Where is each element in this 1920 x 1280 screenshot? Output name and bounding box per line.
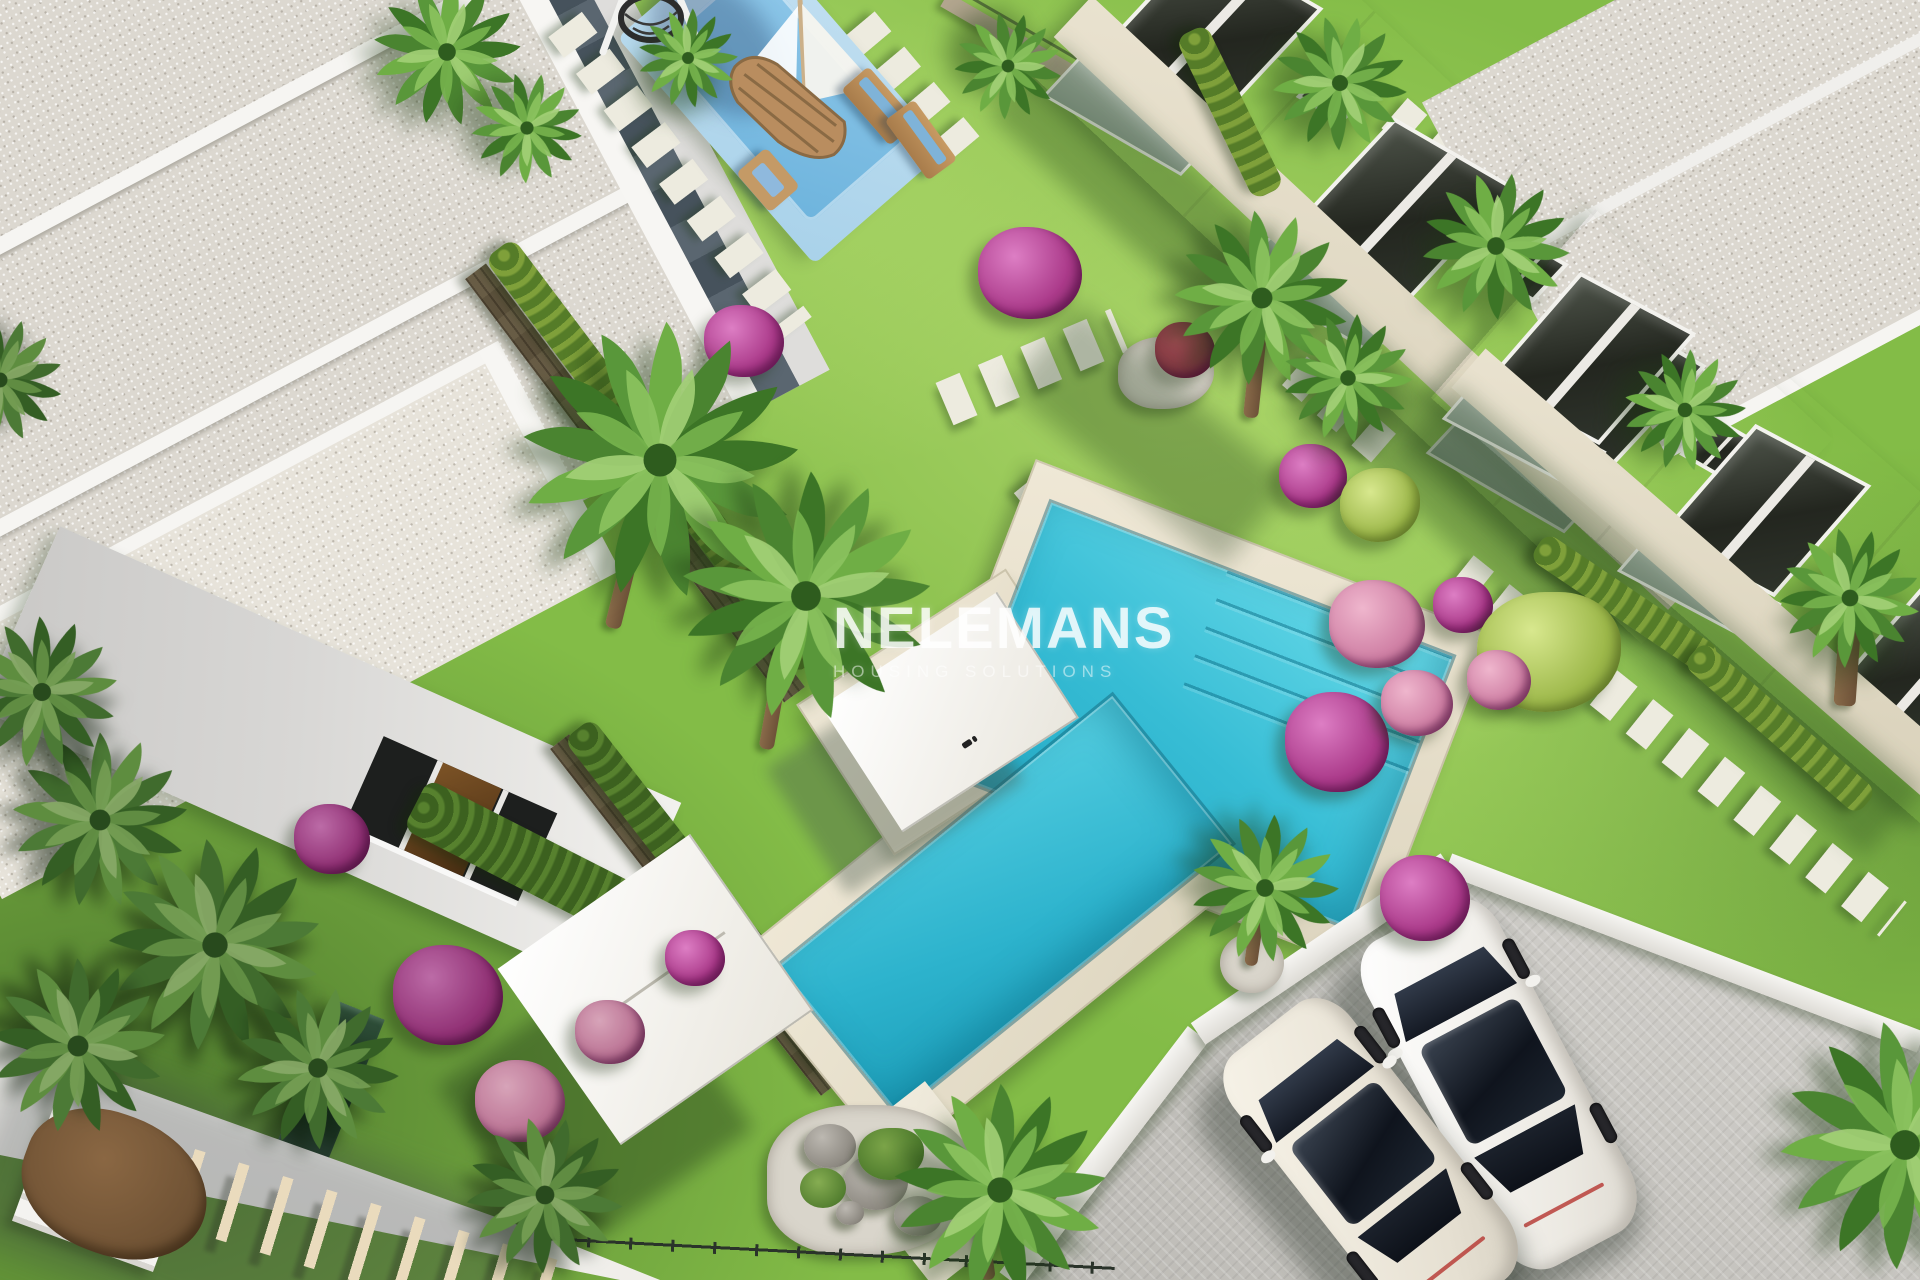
parking-kerb	[1444, 853, 1920, 1052]
roof-edge-fascia	[479, 341, 620, 581]
palm-tree	[0, 580, 154, 804]
playground-safety-mat	[618, 0, 947, 264]
bougainvillea	[978, 227, 1082, 319]
hedge-row	[403, 779, 767, 1001]
boulder	[836, 1201, 864, 1225]
rose-bush	[1467, 650, 1531, 710]
white-walkway	[0, 940, 660, 1280]
palm-tree	[367, 0, 527, 132]
aerial-render-residential-complex: NELEMANS HOUSING SOLUTIONS	[0, 0, 1920, 1280]
car-shadow	[1311, 895, 1659, 1280]
pool-deck	[907, 459, 1493, 971]
pergola-canopy	[498, 834, 814, 1145]
bougainvillea	[704, 305, 784, 377]
palm-tree	[1249, 279, 1446, 476]
roof-parapet	[0, 341, 505, 682]
flowering-bush	[1477, 592, 1621, 712]
rock-garden-grasses	[858, 1128, 924, 1180]
townhouse-row-facade	[1027, 0, 1832, 644]
palm-tree	[442, 43, 611, 212]
cypress-hedge	[1683, 640, 1878, 815]
garden-fence	[545, 1233, 1115, 1275]
palm-tree	[843, 1033, 1157, 1280]
car-body	[1207, 983, 1536, 1280]
bougainvillea	[1279, 444, 1347, 508]
pergola-shadow	[766, 655, 1024, 895]
pool-deck	[729, 647, 1281, 1164]
townhouse-walkway	[1054, 0, 1707, 610]
parking-kerb	[1191, 853, 1455, 1044]
car-shadow	[1178, 992, 1546, 1280]
window-frame	[398, 760, 443, 850]
window-frame	[464, 789, 509, 879]
cypress-hedge	[1529, 532, 1721, 676]
play-table	[736, 147, 800, 212]
building-ledge	[396, 0, 830, 386]
left-building-upper-roof	[0, 0, 830, 910]
pergola-deck	[796, 568, 1104, 855]
palm-trunk	[759, 640, 793, 751]
rose-bush	[575, 1000, 645, 1064]
rose-bush	[475, 1060, 565, 1142]
townhouse-shadow	[1397, 383, 1920, 858]
palm-trunk	[1243, 321, 1268, 418]
boundary-fence	[942, 0, 1167, 111]
pergola-canopy	[821, 592, 1079, 832]
dark-window-band	[344, 736, 557, 901]
slat-fence-shadow	[28, 1122, 548, 1280]
townhouse-walkway	[1451, 348, 1920, 807]
garden-steps	[12, 1108, 194, 1272]
palm-tree	[1395, 145, 1597, 347]
red-shrub	[1155, 322, 1215, 378]
palm-trunk	[605, 500, 652, 630]
pool-steps	[1178, 570, 1453, 786]
sun-lounger-pad	[830, 1081, 1029, 1280]
bougainvillea	[294, 804, 370, 874]
bougainvillea	[1433, 577, 1493, 633]
palm-tree	[1140, 176, 1384, 420]
stepping-stone-path	[936, 309, 1129, 426]
wooden-lounger	[885, 99, 958, 180]
mulch-bed	[2, 1087, 228, 1280]
cypress-hedge	[1175, 24, 1284, 201]
townhouse-roof	[1422, 0, 1920, 394]
roof-parapet	[0, 142, 716, 696]
palm-tree	[1743, 491, 1920, 705]
palm-tree	[55, 785, 375, 1105]
townhouse-row-facade	[1431, 209, 1920, 831]
bougainvillea	[393, 945, 503, 1045]
car-body	[1346, 886, 1653, 1280]
palm-tree	[1740, 980, 1920, 1280]
palm-trunk	[974, 1224, 996, 1280]
palm-trunk	[1244, 907, 1265, 966]
swimming-pool-lap-section	[778, 696, 1232, 1114]
palm-tree	[441, 1091, 649, 1280]
pebble-circle	[1220, 933, 1284, 993]
bougainvillea	[665, 930, 725, 986]
watermark-tagline: HOUSING SOLUTIONS	[833, 662, 1174, 682]
swimming-pool-wide-section	[947, 503, 1452, 928]
palm-tree	[1595, 320, 1775, 500]
palm-tree	[0, 284, 96, 476]
parked-car	[1346, 886, 1653, 1280]
parking-kerb	[1000, 1026, 1209, 1280]
boulder	[844, 1154, 908, 1210]
palm-tree	[616, 0, 760, 130]
boulder	[804, 1124, 856, 1168]
flowering-bush	[1340, 468, 1420, 542]
boundary-wall	[940, 0, 1171, 135]
bougainvillea	[1285, 692, 1389, 792]
window-pane-reflection	[404, 762, 502, 876]
stone-wall	[465, 264, 805, 703]
palm-tree	[618, 408, 994, 784]
palm-tree	[1156, 779, 1375, 998]
stepping-stone-path	[548, 12, 811, 342]
parked-car	[1207, 983, 1536, 1280]
basket-swing	[585, 0, 715, 60]
rose-bush	[1329, 580, 1425, 668]
balcony-glass-band	[360, 0, 799, 404]
stone-wall	[550, 734, 840, 1096]
pergola-shadow	[438, 952, 754, 1263]
rock-garden-bed	[767, 1105, 977, 1255]
rock-garden-grasses	[800, 1168, 846, 1208]
townhouse-roof	[1556, 31, 1920, 459]
stepping-stone-path	[1381, 98, 1552, 254]
stepping-stone-path	[846, 11, 980, 160]
palm-tree	[1253, 0, 1426, 170]
stepping-stone-path	[1446, 555, 1907, 936]
stepping-stone-path	[1282, 356, 1402, 467]
townhouse-shadow	[988, 41, 1641, 660]
vertical-garden-panel	[265, 1000, 384, 1192]
roof-parapet	[0, 0, 599, 476]
playground-mat-inner	[656, 0, 907, 224]
palm-tree	[0, 694, 226, 946]
left-building-lower-roof	[0, 341, 620, 899]
cypress-hedge	[484, 238, 826, 675]
island-shadow	[1007, 303, 1292, 567]
watermark-brand: NELEMANS	[833, 600, 1174, 658]
palm-tree	[510, 310, 810, 610]
cypress-hedge	[563, 717, 856, 1078]
parking-area	[760, 830, 1920, 1280]
palm-tree	[216, 966, 420, 1170]
walkway-shadow	[0, 1031, 549, 1280]
gravel-bed	[1118, 337, 1214, 409]
left-building-side-wall	[0, 526, 681, 985]
slat-fence	[40, 1109, 561, 1280]
stepping-stone-path	[1014, 467, 1176, 654]
watermark: NELEMANS HOUSING SOLUTIONS	[833, 600, 1174, 682]
palm-trunk	[1833, 629, 1860, 706]
roof-edge-fascia	[338, 0, 765, 417]
play-boat	[680, 0, 900, 190]
palm-tree	[934, 0, 1083, 140]
palm-tree	[0, 936, 188, 1156]
wooden-lounger	[841, 66, 917, 145]
rose-bush	[1381, 670, 1453, 736]
bougainvillea	[1380, 855, 1470, 941]
boulder	[894, 1196, 942, 1236]
palm-shadow-on-mat	[623, 0, 810, 142]
